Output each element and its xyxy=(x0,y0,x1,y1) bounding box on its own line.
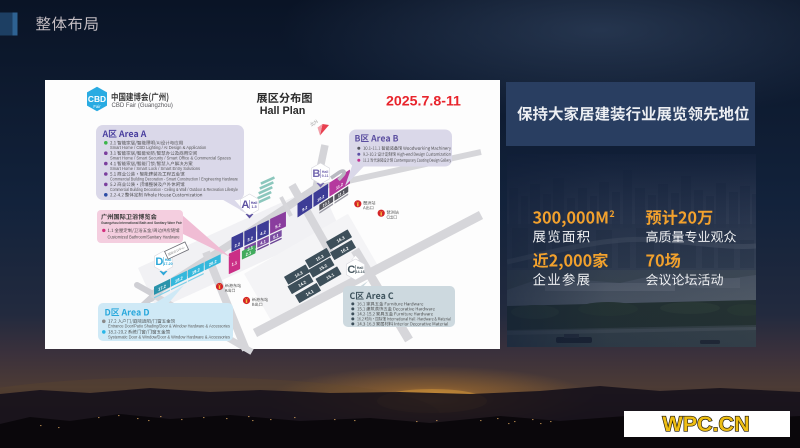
svg-text:B: B xyxy=(312,168,320,180)
svg-text:CBD Fair (Guangzhou): CBD Fair (Guangzhou) xyxy=(112,103,173,109)
svg-text:C: C xyxy=(347,264,355,276)
svg-text:Hall Plan: Hall Plan xyxy=(260,105,306,117)
svg-text:14-16: 14-16 xyxy=(355,270,364,274)
svg-text:Commercial Building Decoration: Commercial Building Decoration - Smart C… xyxy=(110,176,239,181)
svg-text:Customized Bathroom/Sanitary H: Customized Bathroom/Sanitary Hardware xyxy=(108,235,181,240)
svg-text:Smart Home / Smart Lock / Smar: Smart Home / Smart Lock / Smart Entry So… xyxy=(110,166,200,171)
svg-text:Commercial Building Decoration: Commercial Building Decoration - Ceiling… xyxy=(110,187,239,192)
svg-text:WPC.CN: WPC.CN xyxy=(662,412,749,436)
svg-text:9-11: 9-11 xyxy=(322,174,329,178)
svg-text:CBD: CBD xyxy=(88,94,106,104)
svg-text:Guangzhou International Bath a: Guangzhou International Bath and Sanitar… xyxy=(101,221,183,225)
svg-text:Systematic Door & Window/Door: Systematic Door & Window/Door & Window H… xyxy=(108,334,230,339)
svg-text:Smart Home / CBD Lighting / AI: Smart Home / CBD Lighting / AI Design & … xyxy=(110,145,207,150)
svg-text:1-5: 1-5 xyxy=(251,205,256,209)
svg-text:2025.7.8-11: 2025.7.8-11 xyxy=(386,94,461,110)
svg-text:Fair: Fair xyxy=(93,104,101,109)
svg-text:Smart Home / Smart Security /: Smart Home / Smart Security / Smart Offi… xyxy=(110,156,231,161)
svg-text:Entrance Door/Patio Shading/Do: Entrance Door/Patio Shading/Door & Windo… xyxy=(108,324,230,329)
svg-text:17-20: 17-20 xyxy=(163,262,172,266)
svg-text:D: D xyxy=(155,256,163,268)
